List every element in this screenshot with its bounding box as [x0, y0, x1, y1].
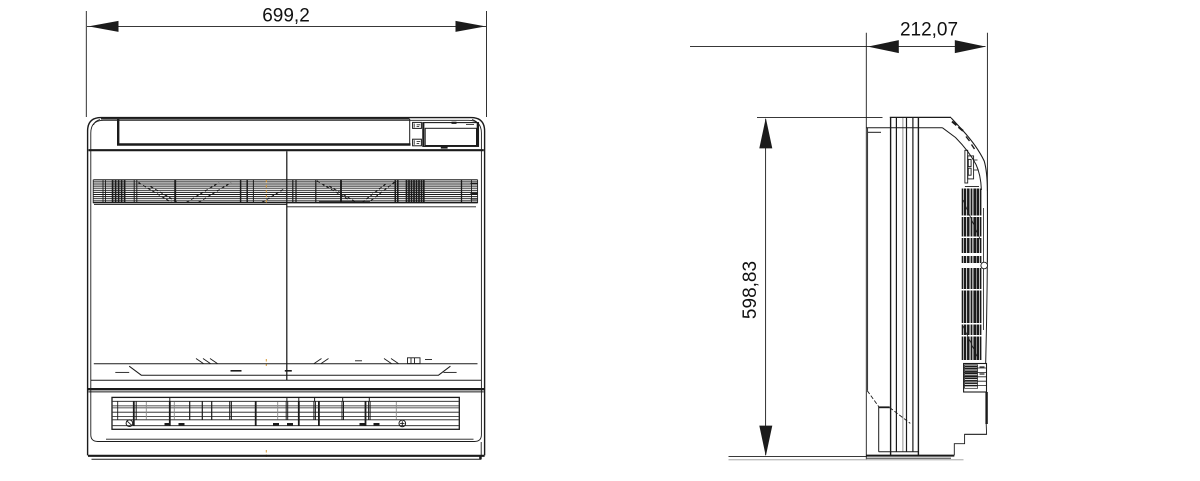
- svg-text:212,07: 212,07: [900, 20, 958, 41]
- svg-text:598,83: 598,83: [740, 261, 761, 319]
- svg-text:699,2: 699,2: [262, 6, 310, 27]
